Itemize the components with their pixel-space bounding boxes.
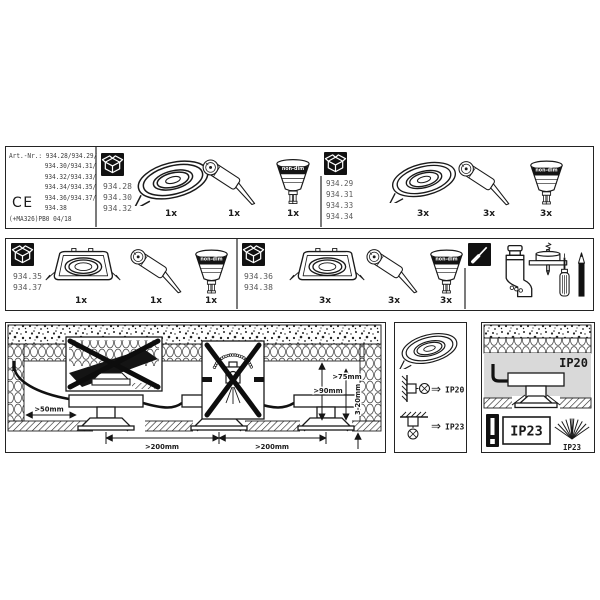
panel-installation-section: >50mm >200mm >200mm >90mm >75mm 3-20mm — [5, 322, 386, 453]
luminaire-circle-x-icon — [408, 429, 418, 439]
implies-arrow: ⇒ — [431, 419, 441, 433]
screwdriver-icon — [468, 243, 491, 266]
ce-mark: CE — [12, 195, 34, 211]
ip-wall-rating: IP20 — [445, 386, 464, 395]
socket-qty: 3x — [388, 296, 400, 306]
ip-ceiling-rating: IP23 — [445, 423, 464, 432]
screed-layer — [8, 325, 381, 344]
fixture-qty: 1x — [75, 296, 87, 306]
production-code: (+MA326)PB0 04/18 — [9, 214, 72, 223]
box-content-number: 934.29 — [326, 179, 353, 188]
dim-ceiling-thickness: 3-20mm — [354, 384, 362, 415]
dim-clearance-top: >90mm — [313, 387, 342, 395]
carton-box-icon — [324, 152, 347, 175]
screed-layer — [484, 325, 591, 338]
square-spot-drawing — [46, 248, 121, 280]
carton-box-icon — [11, 243, 34, 266]
ip-cavity-rating: IP20 — [559, 356, 588, 370]
lamp-qty: 3x — [440, 296, 452, 306]
pencil-drawing — [579, 253, 585, 297]
box-content-number: 934.38 — [244, 283, 273, 292]
ip-spray-rating: IP23 — [563, 443, 582, 451]
lamp-qty: 1x — [287, 209, 299, 219]
instruction-sheet: 934.28 934.30 934.32 1x 1x non-dim 1x 93… — [0, 0, 600, 600]
panel-contents-row1: 934.28 934.30 934.32 1x 1x non-dim 1x 93… — [5, 146, 594, 229]
installation-drawing: >50mm >200mm >200mm >90mm >75mm 3-20mm — [6, 323, 384, 451]
art-line: 934.34/934.35/ — [9, 182, 97, 192]
screwdriver-drawing — [560, 254, 569, 297]
box-content-number: 934.31 — [326, 190, 353, 199]
insulation-right — [360, 344, 381, 421]
round-spot-drawing — [380, 157, 459, 207]
art-line: 934.32/934.33/ — [9, 172, 97, 182]
fixture-qty: 1x — [165, 209, 177, 219]
fixture-qty: 3x — [319, 296, 331, 306]
gu10-socket-drawing — [131, 250, 187, 294]
gu10-socket-drawing — [459, 162, 515, 206]
gu10-socket-drawing — [367, 250, 423, 294]
square-spot-drawing — [290, 248, 365, 280]
carton-box-icon — [242, 243, 265, 266]
inset-no-cover-heat — [202, 341, 264, 419]
box-content-number: 934.35 — [13, 272, 42, 281]
ip-section-drawing: IP20 IP23 IP — [482, 323, 593, 451]
lamp-band-label: non-dim — [535, 168, 557, 174]
socket-qty: 1x — [228, 209, 240, 219]
panel-ip-section: IP20 IP23 IP — [481, 322, 595, 453]
art-line: 934.30/934.31/ — [9, 161, 97, 171]
carton-box-icon — [101, 153, 124, 176]
inset-no-insulation-cover — [66, 337, 162, 391]
ip-warning-rating: IP23 — [510, 424, 543, 440]
box-content-number: 934.37 — [13, 283, 42, 292]
round-spot-drawing — [395, 328, 460, 372]
recessed-fixture-section — [69, 395, 145, 432]
panel-contents-row2: 934.35 934.37 1x 1x non-dim 1x 934.36 93… — [5, 238, 594, 311]
box-content-number: 934.33 — [326, 201, 353, 210]
lamp-band-label: non-dim — [282, 166, 304, 172]
round-spot-drawing — [124, 155, 212, 211]
wall-mount-pictogram — [402, 375, 429, 402]
spray-water-icon — [555, 419, 589, 440]
recessed-fixture-section — [294, 395, 360, 432]
panel-ip-pictograms: ⇒ IP20 ⇒ IP23 — [394, 322, 467, 453]
drill-drawing — [506, 246, 532, 297]
row2-graphics: 934.35 934.37 1x 1x non-dim 1x 934.36 93… — [6, 239, 591, 309]
art-line: Art.-Nr.: 934.28/934.29/ — [9, 151, 97, 161]
luminaire-circle-x-icon — [420, 384, 430, 394]
ip-pictograms: ⇒ IP20 ⇒ IP23 — [395, 323, 465, 451]
box-content-number: 934.28 — [103, 182, 132, 191]
exclamation-dot — [490, 439, 495, 444]
gu10-socket-drawing — [203, 160, 261, 205]
socket-qty: 3x — [483, 209, 495, 219]
dim-spacing: >200mm — [145, 443, 179, 451]
box-content-number: 934.30 — [103, 193, 132, 202]
insulation-layer — [484, 338, 591, 353]
lamp-qty: 1x — [205, 296, 217, 306]
implies-arrow: ⇒ — [431, 382, 441, 396]
socket-qty: 1x — [150, 296, 162, 306]
dim-gap-side: >50mm — [34, 406, 63, 414]
ceiling-mount-pictogram — [400, 412, 428, 439]
box-content-number: 934.32 — [103, 204, 132, 213]
insulation-left — [8, 344, 24, 421]
lamp-band-label: non-dim — [435, 257, 457, 263]
lamp-qty: 3x — [540, 209, 552, 219]
box-content-number: 934.36 — [244, 272, 273, 281]
box-content-number: 934.34 — [326, 212, 354, 221]
fixture-qty: 3x — [417, 209, 429, 219]
lamp-band-label: non-dim — [200, 257, 222, 263]
dim-spacing: >200mm — [255, 443, 289, 451]
dim-clearance-min: >75mm — [332, 373, 361, 381]
